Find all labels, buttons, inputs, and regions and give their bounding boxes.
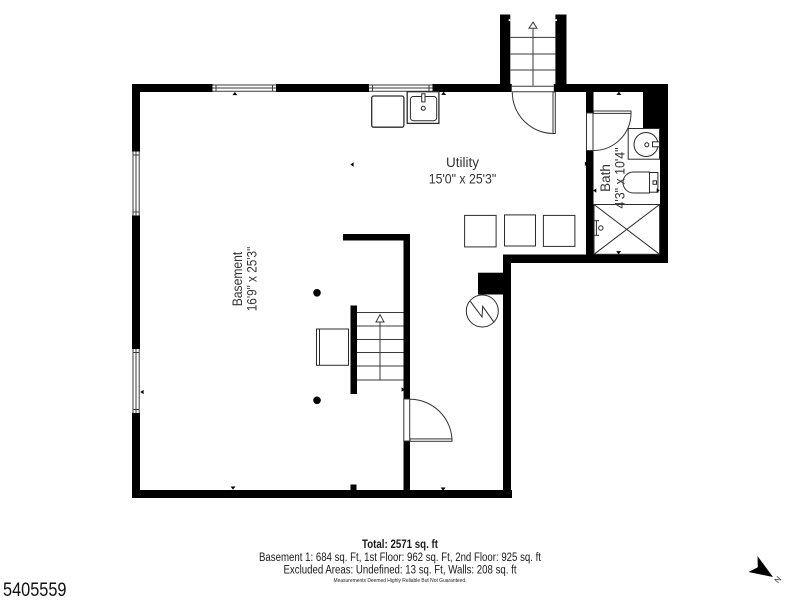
svg-text:15'0" x 25'3": 15'0" x 25'3" (429, 172, 497, 187)
svg-text:Utility: Utility (446, 155, 479, 170)
svg-text:Basement 1: 684 sq. Ft, 1st Fl: Basement 1: 684 sq. Ft, 1st Floor: 962 s… (259, 552, 542, 564)
svg-text:Excluded Areas: Undefined: 13: Excluded Areas: Undefined: 13 sq. Ft, Wa… (284, 565, 518, 577)
svg-text:4'3" x 10'4": 4'3" x 10'4" (613, 147, 628, 208)
svg-text:Bath: Bath (598, 164, 613, 192)
svg-text:16'9" x 25'3": 16'9" x 25'3" (245, 247, 260, 312)
svg-text:Total: 2571 sq. ft: Total: 2571 sq. ft (362, 539, 438, 551)
svg-text:Measurements Deemed Highly Rel: Measurements Deemed Highly Reliable But … (334, 578, 467, 584)
svg-text:Basement: Basement (230, 252, 245, 307)
svg-text:5405559: 5405559 (3, 580, 67, 600)
svg-text:N: N (772, 574, 783, 584)
